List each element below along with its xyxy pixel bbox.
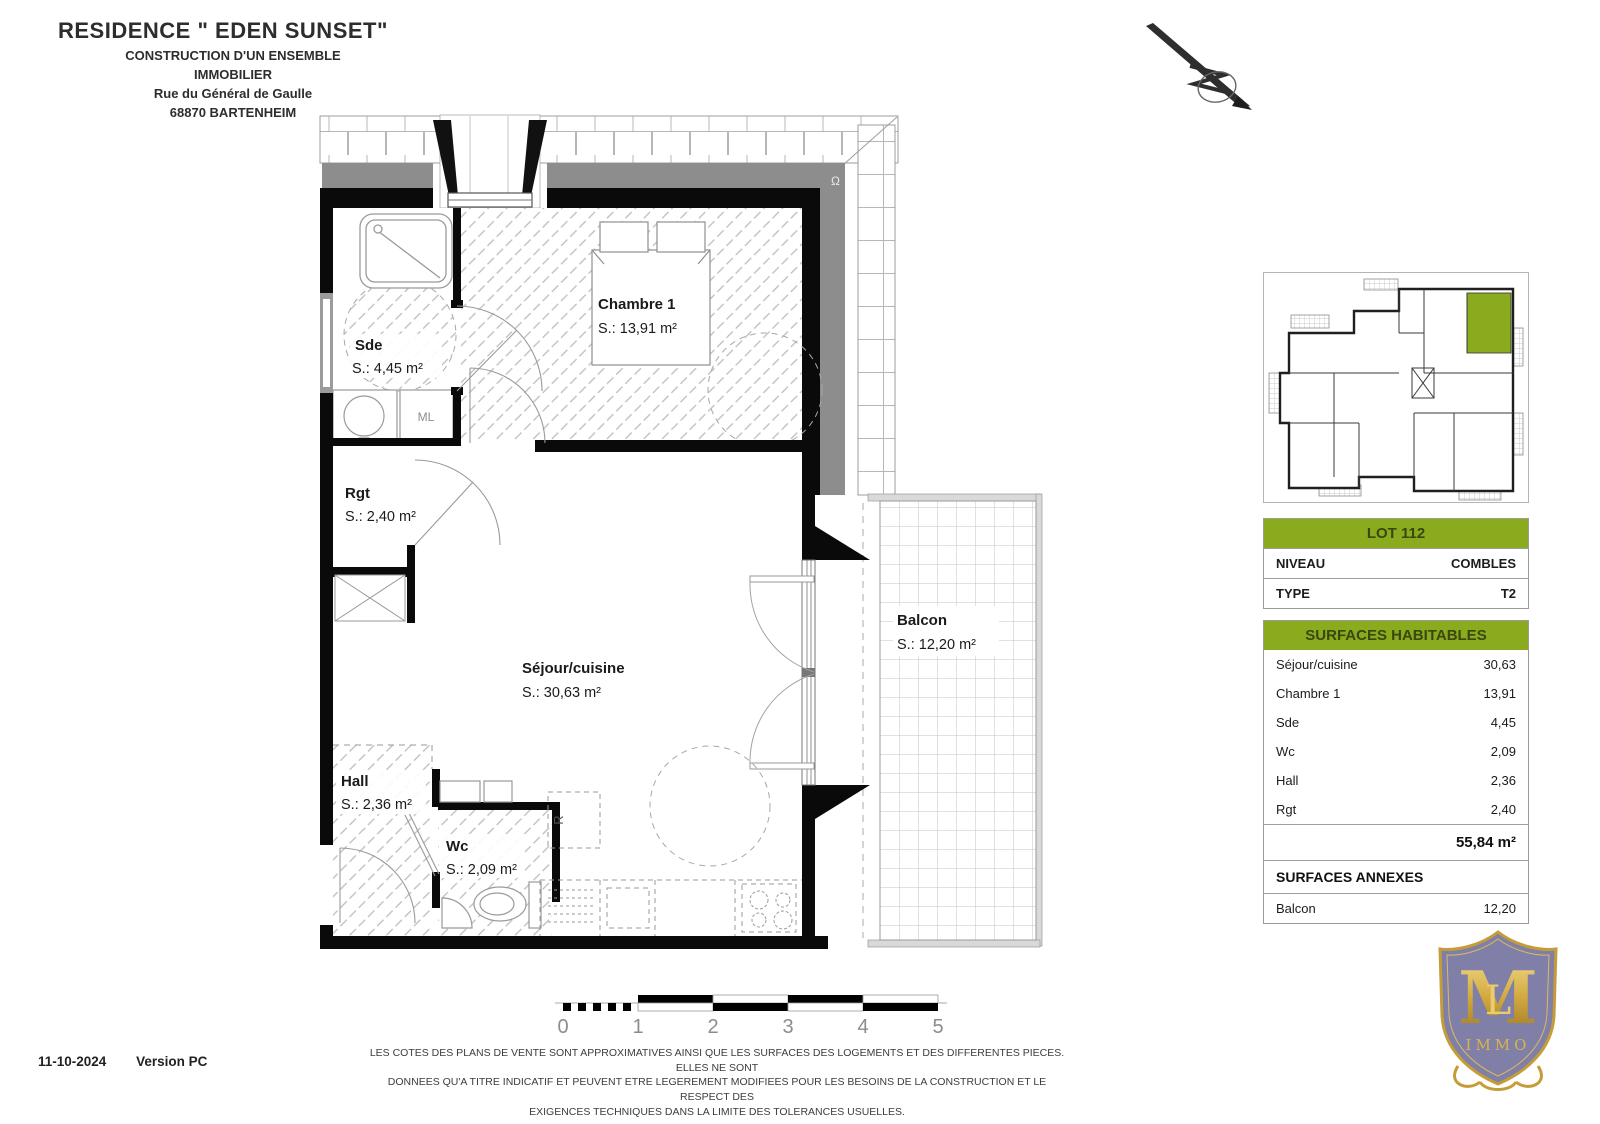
surface-row: Séjour/cuisine 30,63 — [1264, 650, 1528, 679]
surface-value: 2,36 — [1491, 773, 1516, 788]
surface-value: 30,63 — [1483, 657, 1516, 672]
room-label-rgt: Rgt — [345, 485, 370, 502]
version-value: Version PC — [136, 1054, 207, 1069]
lot-label-niveau: NIVEAU — [1276, 556, 1325, 571]
room-label-hall: Hall — [341, 773, 369, 790]
lot-row-type: TYPE T2 — [1264, 578, 1528, 608]
room-area-hall: S.: 2,36 m² — [341, 797, 412, 813]
room-area-chambre: S.: 13,91 m² — [598, 321, 677, 337]
surfaces-total: 55,84 m² — [1264, 824, 1528, 860]
shower — [360, 214, 452, 288]
room-area-rgt: S.: 2,40 m² — [345, 509, 416, 525]
lot-value-type: T2 — [1501, 586, 1516, 601]
lot-table: LOT 112 NIVEAU COMBLES TYPE T2 — [1263, 518, 1529, 609]
scale-bar: 0 1 2 3 4 5 — [545, 983, 957, 1041]
project-line1: CONSTRUCTION D'UN ENSEMBLE — [58, 47, 408, 66]
washbasin — [333, 390, 397, 444]
surface-label: Chambre 1 — [1276, 686, 1340, 701]
key-plan — [1264, 273, 1528, 502]
surfaces-title: SURFACES HABITABLES — [1264, 621, 1528, 650]
north-arrow-icon — [1138, 20, 1258, 120]
room-label-chambre: Chambre 1 — [598, 296, 676, 313]
project-line2: IMMOBILIER — [58, 66, 408, 85]
storage-cross — [335, 575, 405, 621]
vent-symbol: Ω — [831, 174, 840, 188]
surfaces-table: SURFACES HABITABLES Séjour/cuisine 30,63… — [1263, 620, 1529, 924]
surface-value: 13,91 — [1483, 686, 1516, 701]
plan-date: 11-10-2024 Version PC — [38, 1054, 233, 1069]
washing-machine-label: ML — [418, 410, 435, 424]
surface-row: Wc 2,09 — [1264, 737, 1528, 766]
scale-tick: 2 — [707, 1016, 718, 1038]
project-line3: Rue du Général de Gaulle — [58, 85, 408, 104]
annexe-label: Balcon — [1276, 901, 1316, 916]
annexe-value: 12,20 — [1483, 901, 1516, 916]
lot-row-niveau: NIVEAU COMBLES — [1264, 548, 1528, 578]
lot-value-niveau: COMBLES — [1451, 556, 1516, 571]
logo-subtext: IMMO — [1466, 1036, 1531, 1054]
window-glass — [323, 299, 330, 387]
scale-tick: 1 — [632, 1016, 643, 1038]
lot-label-type: TYPE — [1276, 586, 1310, 601]
washing-machine: ML — [400, 390, 453, 442]
disclaimer-line2: DONNEES QU'A TITRE INDICATIF ET PEUVENT … — [362, 1075, 1072, 1104]
surface-value: 2,09 — [1491, 744, 1516, 759]
room-label-wc: Wc — [446, 838, 469, 855]
logo-monogram2: L — [1485, 978, 1512, 1024]
project-header: RESIDENCE " EDEN SUNSET" CONSTRUCTION D'… — [58, 18, 408, 122]
room-label-balcon: Balcon — [897, 612, 947, 629]
entry-door-gap — [320, 845, 333, 925]
key-plan-box — [1263, 272, 1529, 503]
room-area-sde: S.: 4,45 m² — [352, 361, 423, 377]
agency-logo: M L IMMO — [1428, 926, 1568, 1098]
surface-row: Chambre 1 13,91 — [1264, 679, 1528, 708]
surface-label: Sde — [1276, 715, 1299, 730]
scale-tick: 4 — [857, 1016, 868, 1038]
room-label-sde: Sde — [355, 337, 383, 354]
surface-row: Hall 2,36 — [1264, 766, 1528, 795]
annexe-row: Balcon 12,20 — [1264, 893, 1528, 923]
scale-tick: 3 — [782, 1016, 793, 1038]
surface-row: Rgt 2,40 — [1264, 795, 1528, 824]
room-label-sejour: Séjour/cuisine — [522, 660, 625, 677]
scale-tick: 5 — [932, 1016, 943, 1038]
surface-label: Rgt — [1276, 802, 1296, 817]
lot-title: LOT 112 — [1264, 519, 1528, 548]
plan-sheet: RESIDENCE " EDEN SUNSET" CONSTRUCTION D'… — [0, 0, 1600, 1124]
project-title: RESIDENCE " EDEN SUNSET" — [58, 18, 408, 44]
surface-row: Sde 4,45 — [1264, 708, 1528, 737]
disclaimer-line3: EXIGENCES TECHNIQUES DANS LA LIMITE DES … — [362, 1105, 1072, 1120]
floor-plan: Ω — [310, 108, 1050, 968]
room-area-wc: S.: 2,09 m² — [446, 862, 517, 878]
balcony-zone — [863, 494, 1042, 947]
surface-label: Hall — [1276, 773, 1298, 788]
surface-value: 2,40 — [1491, 802, 1516, 817]
scale-tick: 0 — [557, 1016, 568, 1038]
minimap-highlighted-unit — [1467, 293, 1511, 353]
fridge-label: R — [551, 815, 566, 824]
disclaimer: LES COTES DES PLANS DE VENTE SONT APPROX… — [362, 1046, 1072, 1119]
disclaimer-line1: LES COTES DES PLANS DE VENTE SONT APPROX… — [362, 1046, 1072, 1075]
surface-value: 4,45 — [1491, 715, 1516, 730]
scale-ticks: 0 1 2 3 4 5 — [557, 1016, 943, 1038]
annexes-title: SURFACES ANNEXES — [1264, 860, 1528, 893]
room-area-sejour: S.: 30,63 m² — [522, 685, 601, 701]
surface-label: Séjour/cuisine — [1276, 657, 1358, 672]
date-value: 11-10-2024 — [38, 1054, 106, 1069]
room-area-balcon: S.: 12,20 m² — [897, 637, 976, 653]
surface-label: Wc — [1276, 744, 1295, 759]
